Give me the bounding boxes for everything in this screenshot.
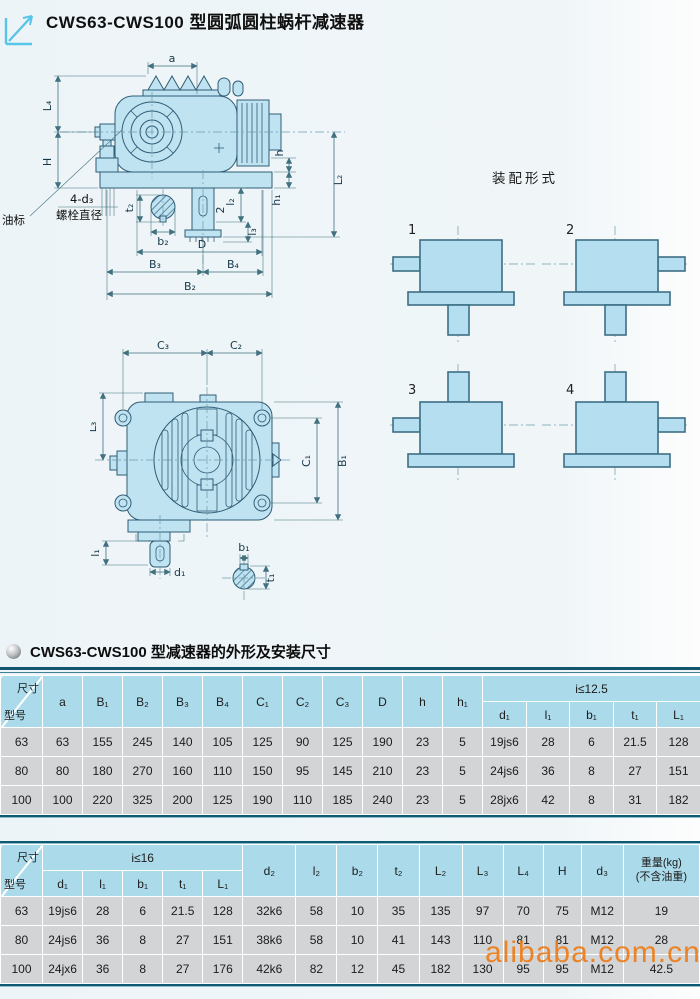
col-header: B₄ bbox=[203, 676, 243, 728]
table-cell: 27 bbox=[163, 926, 203, 955]
dim-B4: B₄ bbox=[227, 258, 240, 271]
table-cell: 19js6 bbox=[483, 728, 527, 757]
assembly-form-3: 3 bbox=[388, 360, 538, 488]
catalog-page: CWS63-CWS100 型圆弧圆柱蜗杆减速器 bbox=[0, 0, 700, 999]
table-cell: 32k6 bbox=[243, 897, 296, 926]
dim-C1: C₁ bbox=[300, 455, 313, 467]
dim-l2: l₂ bbox=[224, 198, 237, 205]
table-cell: 8 bbox=[123, 955, 163, 984]
table-cell: 110 bbox=[203, 757, 243, 786]
table-cell: 80 bbox=[43, 757, 83, 786]
table-cell: 10 bbox=[337, 926, 378, 955]
table-cell: 143 bbox=[419, 926, 462, 955]
table-cell: 28 bbox=[527, 728, 570, 757]
table-cell: 41 bbox=[378, 926, 419, 955]
sub-col-header: L₁ bbox=[657, 702, 700, 728]
oil-gauge-label: 油标 bbox=[2, 213, 25, 227]
corner-label-bottom: 型号 bbox=[4, 707, 26, 723]
assembly-form-1: 1 bbox=[388, 218, 538, 346]
table-cell: 97 bbox=[462, 897, 503, 926]
col-header: C₂ bbox=[283, 676, 323, 728]
table-cell: 100 bbox=[43, 786, 83, 815]
table-cell: 182 bbox=[419, 955, 462, 984]
sub-col-header: b₁ bbox=[570, 702, 614, 728]
dim-B1: B₁ bbox=[336, 455, 349, 467]
dim-a: a bbox=[169, 52, 176, 65]
table-row: 6319js628621.512832k6581035135977075M121… bbox=[1, 897, 700, 926]
dim-C3: C₃ bbox=[157, 339, 169, 352]
col-header: b₂ bbox=[337, 845, 378, 897]
sub-col-header: l₁ bbox=[527, 702, 570, 728]
table-cell: 125 bbox=[203, 786, 243, 815]
dim-L2: L₂ bbox=[332, 175, 345, 186]
col-header: B₃ bbox=[163, 676, 203, 728]
table-cell: 31 bbox=[614, 786, 657, 815]
col-header: a bbox=[43, 676, 83, 728]
dim-t2: t₂ bbox=[123, 204, 136, 213]
section-bar: CWS63-CWS100 型减速器的外形及安装尺寸 bbox=[0, 639, 700, 673]
table-cell: 90 bbox=[283, 728, 323, 757]
weight-col-header: 重量(kg) (不含油重) bbox=[623, 845, 699, 897]
table-cell: 245 bbox=[123, 728, 163, 757]
table-header-row: 尺寸 型号 a B₁ B₂ B₃ B₄ C₁ C₂ C₃ D h h₁ i≤12… bbox=[1, 676, 700, 702]
dim-d1: d₁ bbox=[174, 566, 185, 579]
sub-col-header: b₁ bbox=[123, 871, 163, 897]
corner-arrow-icon bbox=[2, 6, 42, 46]
table-cell: 210 bbox=[363, 757, 403, 786]
table-cell: 5 bbox=[443, 786, 483, 815]
table-cell: 125 bbox=[243, 728, 283, 757]
bullet-sphere-icon bbox=[6, 644, 21, 659]
table-cell: 95 bbox=[283, 757, 323, 786]
table-rule bbox=[0, 815, 700, 818]
table-cell: 105 bbox=[203, 728, 243, 757]
table-cell: 45 bbox=[378, 955, 419, 984]
col-header: d₂ bbox=[243, 845, 296, 897]
table-cell: 23 bbox=[403, 757, 443, 786]
sub-col-header: L₁ bbox=[203, 871, 243, 897]
assembly-number-1: 1 bbox=[408, 223, 416, 238]
dim-b2: b₂ bbox=[157, 235, 168, 248]
dim-l1: l₁ bbox=[90, 549, 102, 556]
col-header: B₁ bbox=[83, 676, 123, 728]
table-cell: 128 bbox=[657, 728, 700, 757]
table-cell: 42 bbox=[527, 786, 570, 815]
table-cell: 5 bbox=[443, 757, 483, 786]
col-header: B₂ bbox=[123, 676, 163, 728]
table-rule bbox=[0, 984, 700, 987]
dim-B2: B₂ bbox=[184, 280, 196, 293]
table-cell: 21.5 bbox=[614, 728, 657, 757]
col-header: C₃ bbox=[323, 676, 363, 728]
table-cell: 28jx6 bbox=[483, 786, 527, 815]
table-cell: 325 bbox=[123, 786, 163, 815]
base-plate bbox=[100, 172, 272, 188]
sub-col-header: d₁ bbox=[43, 871, 83, 897]
page-title: CWS63-CWS100 型圆弧圆柱蜗杆减速器 bbox=[46, 8, 364, 33]
table-cell: 128 bbox=[203, 897, 243, 926]
col-header: h₁ bbox=[443, 676, 483, 728]
sub-col-header: d₁ bbox=[483, 702, 527, 728]
table-cell: 240 bbox=[363, 786, 403, 815]
section-title: CWS63-CWS100 型减速器的外形及安装尺寸 bbox=[30, 641, 331, 662]
col-header: D bbox=[363, 676, 403, 728]
assembly-form-4: 4 bbox=[540, 360, 690, 488]
assembly-number-2: 2 bbox=[566, 223, 574, 238]
row-model-label: 80 bbox=[1, 757, 43, 786]
front-base-plate bbox=[128, 520, 190, 532]
row-model-label: 100 bbox=[1, 786, 43, 815]
row-model-label: 80 bbox=[1, 926, 43, 955]
dim-D: D bbox=[198, 238, 206, 251]
divider-rule bbox=[0, 667, 700, 673]
weight-label-line2: (不含油重) bbox=[624, 871, 699, 885]
sub-col-header: t₁ bbox=[614, 702, 657, 728]
dim-L4: L₄ bbox=[41, 100, 54, 111]
table-cell: 36 bbox=[527, 757, 570, 786]
table-header-row: 尺寸 型号 i≤16 d₂ l₂ b₂ t₂ L₂ L₃ L₄ H d₃ 重量(… bbox=[1, 845, 700, 871]
table-cell: 176 bbox=[203, 955, 243, 984]
table-cell: 180 bbox=[83, 757, 123, 786]
table-cell: 200 bbox=[163, 786, 203, 815]
table-cell: 8 bbox=[570, 786, 614, 815]
col-header: C₁ bbox=[243, 676, 283, 728]
corner-cell: 尺寸 型号 bbox=[1, 676, 43, 728]
table-cell: 5 bbox=[443, 728, 483, 757]
table-cell: 270 bbox=[123, 757, 163, 786]
dim-h: h bbox=[273, 149, 286, 156]
table-1: 尺寸 型号 a B₁ B₂ B₃ B₄ C₁ C₂ C₃ D h h₁ i≤12… bbox=[0, 675, 700, 815]
table-cell: 150 bbox=[243, 757, 283, 786]
group-header: i≤12.5 bbox=[483, 676, 700, 702]
table-cell: 151 bbox=[657, 757, 700, 786]
dim-l3: l₃ bbox=[246, 228, 259, 235]
table-cell: 19 bbox=[623, 897, 699, 926]
table-cell: 220 bbox=[83, 786, 123, 815]
table-cell: 151 bbox=[203, 926, 243, 955]
table-cell: 24js6 bbox=[483, 757, 527, 786]
table-cell: M12 bbox=[581, 897, 623, 926]
table-cell: 27 bbox=[614, 757, 657, 786]
dim-B3: B₃ bbox=[149, 258, 161, 271]
table-cell: 35 bbox=[378, 897, 419, 926]
table-row: 80801802701601101509514521023524js636827… bbox=[1, 757, 700, 786]
row-model-label: 63 bbox=[1, 897, 43, 926]
table-cell: 24js6 bbox=[43, 926, 83, 955]
table-cell: 70 bbox=[503, 897, 543, 926]
table-cell: 19js6 bbox=[43, 897, 83, 926]
col-header: L₃ bbox=[462, 845, 503, 897]
corner-label-top: 尺寸 bbox=[17, 680, 39, 696]
table-cell: 24jx6 bbox=[43, 955, 83, 984]
sub-col-header: l₁ bbox=[83, 871, 123, 897]
sub-col-header: t₁ bbox=[163, 871, 203, 897]
assembly-number-3: 3 bbox=[408, 383, 416, 398]
corner-label-bottom: 型号 bbox=[4, 876, 26, 892]
front-view-drawing: C₃ C₂ L₃ C₁ B₁ l₁ d₁ b₁ t₁ bbox=[90, 335, 380, 625]
table-cell: 125 bbox=[323, 728, 363, 757]
table-row: 10010022032520012519011018524023528jx642… bbox=[1, 786, 700, 815]
assembly-form-2: 2 bbox=[540, 218, 690, 346]
table-cell: 28 bbox=[83, 897, 123, 926]
watermark: alibaba.com.cn bbox=[485, 936, 700, 970]
table-cell: 12 bbox=[337, 955, 378, 984]
table-cell: 160 bbox=[163, 757, 203, 786]
bolt-note-line1: 4-d₃ bbox=[70, 192, 94, 206]
table-cell: 58 bbox=[296, 926, 337, 955]
table-cell: 110 bbox=[283, 786, 323, 815]
col-header: L₄ bbox=[503, 845, 543, 897]
row-model-label: 63 bbox=[1, 728, 43, 757]
dim-L3: L₃ bbox=[90, 422, 99, 433]
col-header: H bbox=[543, 845, 581, 897]
table-cell: 82 bbox=[296, 955, 337, 984]
weight-label-line1: 重量(kg) bbox=[624, 857, 699, 871]
table-cell: 8 bbox=[570, 757, 614, 786]
table-cell: 42k6 bbox=[243, 955, 296, 984]
dim-H: H bbox=[41, 158, 54, 166]
table-cell: 23 bbox=[403, 728, 443, 757]
dim-C2: C₂ bbox=[230, 339, 242, 352]
table-row: 63631552451401051259012519023519js628621… bbox=[1, 728, 700, 757]
table-cell: 140 bbox=[163, 728, 203, 757]
col-header: h bbox=[403, 676, 443, 728]
table-cell: 145 bbox=[323, 757, 363, 786]
dimension-table-1: 尺寸 型号 a B₁ B₂ B₃ B₄ C₁ C₂ C₃ D h h₁ i≤12… bbox=[0, 675, 700, 818]
col-header: l₂ bbox=[296, 845, 337, 897]
table-cell: 36 bbox=[83, 955, 123, 984]
table-cell: 6 bbox=[570, 728, 614, 757]
dim-2: 2 bbox=[214, 207, 227, 214]
table-cell: 27 bbox=[163, 955, 203, 984]
assembly-number-4: 4 bbox=[566, 383, 574, 398]
side-view-drawing: a L₄ H h h₁ L₂ l₂ 2 l₃ t₂ bbox=[0, 50, 360, 315]
reducer-side-body bbox=[95, 76, 281, 242]
table-cell: 155 bbox=[83, 728, 123, 757]
col-header: t₂ bbox=[378, 845, 419, 897]
corner-label-top: 尺寸 bbox=[17, 849, 39, 865]
table-cell: 185 bbox=[323, 786, 363, 815]
table-cell: 8 bbox=[123, 926, 163, 955]
table-cell: 36 bbox=[83, 926, 123, 955]
row-model-label: 100 bbox=[1, 955, 43, 984]
table-cell: 75 bbox=[543, 897, 581, 926]
table-cell: 21.5 bbox=[163, 897, 203, 926]
assembly-forms-title: 装配形式 bbox=[492, 167, 558, 187]
table-cell: 6 bbox=[123, 897, 163, 926]
table-cell: 190 bbox=[243, 786, 283, 815]
table-cell: 190 bbox=[363, 728, 403, 757]
col-header: L₂ bbox=[419, 845, 462, 897]
dim-t1: t₁ bbox=[264, 574, 277, 583]
group-header: i≤16 bbox=[43, 845, 243, 871]
bolt-note-line2: 螺栓直径 bbox=[56, 208, 102, 222]
table-cell: 23 bbox=[403, 786, 443, 815]
table-cell: 135 bbox=[419, 897, 462, 926]
col-header: d₃ bbox=[581, 845, 623, 897]
table-cell: 58 bbox=[296, 897, 337, 926]
dim-b1: b₁ bbox=[238, 541, 249, 554]
table-cell: 10 bbox=[337, 897, 378, 926]
table-cell: 38k6 bbox=[243, 926, 296, 955]
table-cell: 63 bbox=[43, 728, 83, 757]
table-cell: 182 bbox=[657, 786, 700, 815]
corner-cell: 尺寸 型号 bbox=[1, 845, 43, 897]
